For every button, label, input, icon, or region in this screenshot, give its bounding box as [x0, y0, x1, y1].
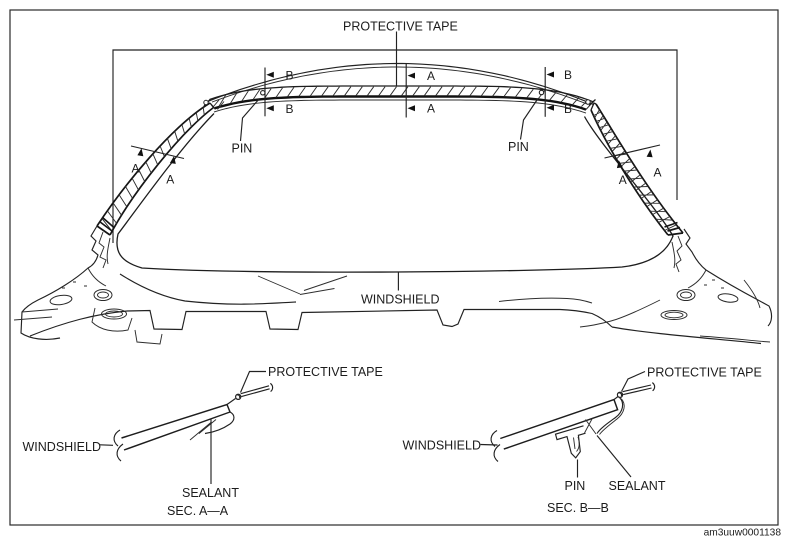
svg-text:B: B — [564, 68, 572, 82]
svg-text:SEC. B—B: SEC. B—B — [547, 501, 609, 515]
svg-text:A: A — [132, 162, 140, 176]
svg-text:SEALANT: SEALANT — [182, 486, 239, 500]
svg-text:B: B — [564, 102, 572, 116]
svg-text:A: A — [427, 102, 435, 116]
svg-text:PROTECTIVE TAPE: PROTECTIVE TAPE — [343, 19, 458, 33]
svg-text:A: A — [166, 173, 174, 187]
svg-text:A: A — [654, 166, 662, 180]
svg-text:WINDSHIELD: WINDSHIELD — [361, 293, 439, 307]
svg-text:A: A — [427, 69, 435, 83]
svg-text:B: B — [286, 102, 294, 116]
svg-text:WINDSHIELD: WINDSHIELD — [403, 439, 481, 453]
svg-text:WINDSHIELD: WINDSHIELD — [23, 440, 101, 454]
svg-text:SEC. A—A: SEC. A—A — [167, 504, 229, 518]
svg-text:SEALANT: SEALANT — [609, 479, 666, 493]
svg-text:PROTECTIVE TAPE: PROTECTIVE TAPE — [268, 365, 383, 379]
svg-text:PIN: PIN — [508, 140, 529, 154]
svg-text:A: A — [619, 173, 627, 187]
svg-text:B: B — [286, 68, 294, 82]
svg-text:am3uuw0001138: am3uuw0001138 — [704, 528, 782, 539]
svg-text:PIN: PIN — [565, 479, 586, 493]
svg-text:PIN: PIN — [232, 142, 253, 156]
svg-text:PROTECTIVE TAPE: PROTECTIVE TAPE — [647, 366, 762, 380]
